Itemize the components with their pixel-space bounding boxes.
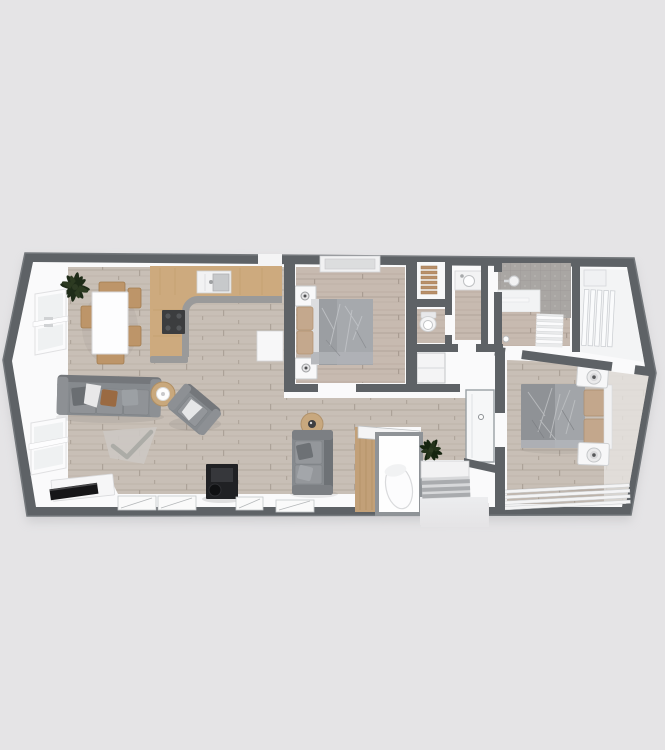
tiled-wall xyxy=(498,263,571,290)
kitchen-end-panel xyxy=(257,331,283,361)
floorplan-page xyxy=(0,0,665,750)
airing-cupboard xyxy=(355,426,421,514)
bedroom-master xyxy=(502,360,649,511)
window xyxy=(33,289,68,355)
entry-cupboard xyxy=(466,390,494,462)
bed-pillow xyxy=(297,307,313,330)
bedroom-small xyxy=(295,256,405,383)
bed-pillow xyxy=(584,390,605,416)
bathroom-ensuite xyxy=(498,263,571,347)
window xyxy=(320,256,380,272)
bed-pillow xyxy=(584,419,605,444)
tiled-wall xyxy=(540,290,571,318)
door-knob xyxy=(479,415,484,420)
headboard xyxy=(604,385,612,449)
accent-pillow xyxy=(100,389,118,407)
wash-basin xyxy=(455,271,483,290)
towel-radiator xyxy=(535,314,563,348)
storage-cabinet xyxy=(417,353,445,383)
toilet xyxy=(420,312,436,332)
threshold-landing xyxy=(421,461,469,478)
shelf xyxy=(501,298,529,302)
window xyxy=(29,417,68,475)
vanity-room-floor xyxy=(455,290,482,340)
dining-table xyxy=(92,292,128,354)
window xyxy=(258,254,282,266)
entry-steps xyxy=(422,476,471,499)
wardrobe-rails xyxy=(582,289,615,347)
sofa xyxy=(56,375,161,418)
floorplan-render xyxy=(0,0,665,750)
loveseat xyxy=(290,430,338,498)
door-knob xyxy=(503,336,509,342)
bed-pillow xyxy=(297,331,313,354)
steps-ground xyxy=(420,497,488,525)
cooktop xyxy=(162,310,185,334)
nightstand xyxy=(578,442,610,465)
wardrobe-top-unit xyxy=(584,270,606,286)
kitchen-sink xyxy=(197,271,231,293)
